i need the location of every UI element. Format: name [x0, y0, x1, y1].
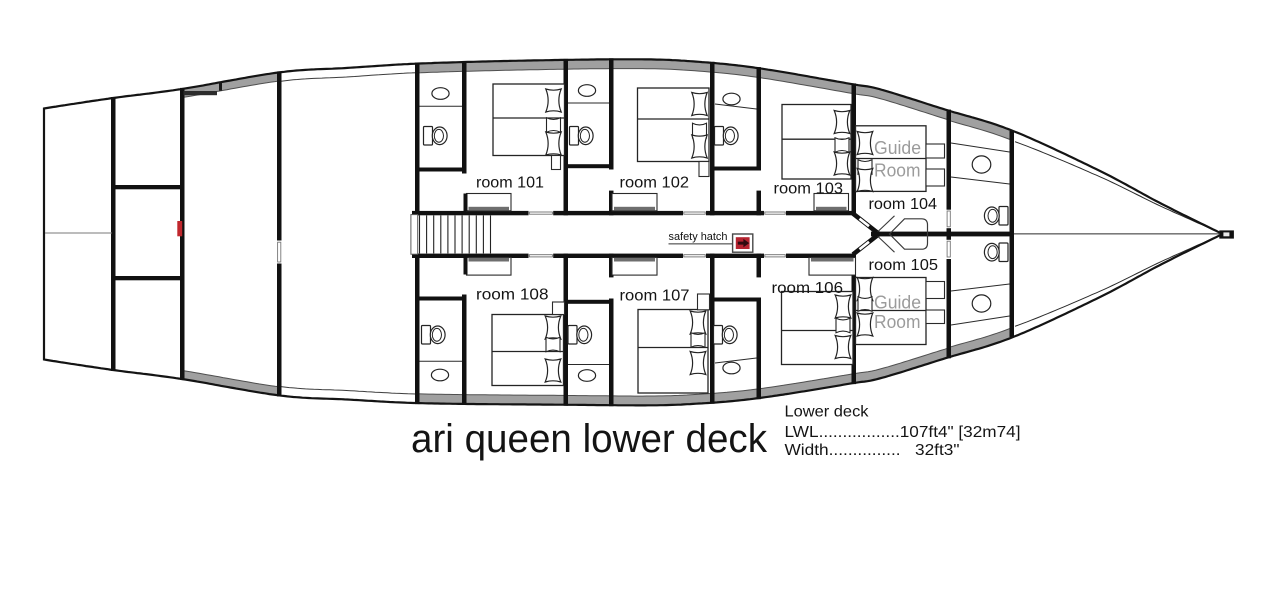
svg-text:Room: Room	[874, 160, 921, 180]
svg-text:room 107: room 107	[620, 287, 690, 304]
svg-text:room 108: room 108	[476, 286, 549, 303]
svg-text:Lower deck: Lower deck	[785, 404, 870, 421]
svg-text:room 101: room 101	[476, 174, 544, 191]
svg-text:ari queen lower deck: ari queen lower deck	[411, 417, 767, 461]
svg-text:room 102: room 102	[620, 174, 690, 191]
svg-text:Guide: Guide	[874, 138, 921, 158]
svg-text:LWL.................107ft4" [3: LWL.................107ft4" [32m74]	[785, 424, 1021, 441]
svg-text:Width............... 32ft3": Width............... 32ft3"	[785, 442, 960, 459]
svg-text:room 104: room 104	[869, 196, 938, 213]
svg-text:Room: Room	[874, 312, 921, 332]
svg-text:Guide: Guide	[874, 293, 921, 313]
svg-text:room 105: room 105	[869, 257, 939, 274]
svg-text:room 106: room 106	[772, 280, 844, 297]
svg-text:room 103: room 103	[774, 181, 844, 198]
svg-text:safety hatch: safety hatch	[669, 231, 728, 243]
